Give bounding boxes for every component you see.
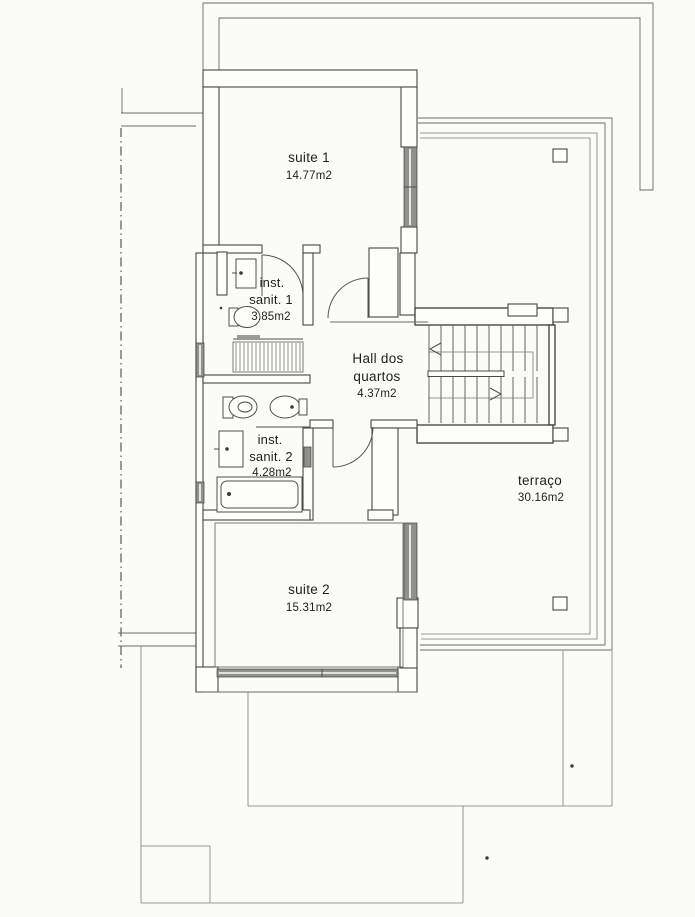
- wall-suite1-top: [203, 70, 417, 87]
- terrace-pillar-bottom: [553, 597, 567, 610]
- wall-suite2-bottom-right: [398, 667, 417, 692]
- room-label-sanit2-line1: inst.: [258, 432, 283, 447]
- wall-suite1-bottom-left: [203, 245, 262, 253]
- wall-exterior-left: [196, 253, 203, 692]
- wall-suite1-left: [203, 87, 219, 253]
- toilet-flush-dot-sanit2: [290, 405, 294, 409]
- terrace-border-inner-1: [420, 133, 597, 639]
- scan-speck: [220, 307, 223, 310]
- wall-sanit2-right: [303, 428, 313, 520]
- stairwell-stub-top-right: [553, 308, 568, 322]
- wall-stairwell-bottom: [417, 425, 553, 443]
- toilet-fixture-sanit2: [270, 396, 300, 418]
- wall-suite2-right-pillar: [397, 598, 418, 628]
- room-label-hall-line1: Hall dos: [352, 351, 403, 366]
- wall-suite1-right-lower: [401, 227, 417, 253]
- room-area-sanit2: 4.28m2: [252, 467, 292, 479]
- bathtub-faucet: [227, 492, 231, 496]
- wall-hall-bottom-left: [310, 420, 333, 428]
- wall-suite1-right-upper: [401, 87, 417, 147]
- floor-plan-drawing: suite 1 14.77m2 inst. sanit. 1 3.85m2 Ha…: [0, 0, 695, 917]
- shower-hatching: [236, 343, 300, 371]
- toilet-cistern-sanit2: [299, 399, 307, 415]
- side-yard-bottom-edge: [118, 633, 196, 646]
- floor-plan-sheet: suite 1 14.77m2 inst. sanit. 1 3.85m2 Ha…: [0, 0, 695, 917]
- room-area-terraco: 30.16m2: [518, 492, 564, 504]
- room-label-hall-line2: quartos: [353, 369, 400, 384]
- room-area-sanit1: 3.85m2: [251, 311, 291, 323]
- terrace-border: [418, 118, 612, 650]
- terrace-pillar-top: [553, 149, 567, 162]
- stair-direction-arrow-up: [430, 343, 441, 355]
- sink-faucet-sanit1: [239, 271, 243, 275]
- ground-outline-small-rect: [141, 846, 210, 903]
- bidet-fixture-sanit2: [229, 396, 257, 418]
- wall-column-terrace-side: [400, 253, 415, 315]
- scan-speck: [485, 856, 488, 859]
- door-swing-suite1: [328, 278, 368, 318]
- side-yard-top-edge: [121, 113, 203, 126]
- room-label-terraco: terraço: [518, 473, 562, 488]
- sink-fixture-sanit1: [236, 259, 256, 288]
- door-swing-suite2-corridor: [333, 427, 373, 467]
- wall-pier-suite2-top: [368, 510, 393, 520]
- wall-suite2-bottom-left: [196, 667, 218, 692]
- terrace-border-outer: [418, 118, 612, 650]
- window-corridor: [304, 447, 311, 467]
- stairwell-niche: [508, 304, 537, 316]
- wall-sanit1-right: [303, 253, 313, 325]
- room-label-suite1: suite 1: [288, 150, 330, 165]
- roof-outline: [203, 3, 653, 190]
- wall-suite1-bottom-right: [303, 245, 320, 253]
- room-label-suite2: suite 2: [288, 582, 330, 597]
- room-label-sanit1-line2: sanit. 1: [249, 292, 293, 307]
- room-area-suite2: 15.31m2: [286, 602, 332, 614]
- staircase: [428, 325, 537, 423]
- roof-edge-band: [203, 3, 653, 190]
- stair-treads-lower-flight: [429, 377, 537, 423]
- scan-speck: [570, 764, 573, 767]
- wall-suite2-right: [400, 628, 417, 668]
- wall-pier-corridor: [372, 428, 398, 515]
- room-area-hall: 4.37m2: [357, 388, 397, 400]
- shower-threshold-bar: [237, 335, 260, 340]
- closet-strip: [217, 252, 227, 295]
- stairwell-stub-bottom-right: [553, 428, 568, 441]
- side-yard: [118, 88, 203, 668]
- room-label-sanit2-line2: sanit. 2: [249, 449, 293, 464]
- terrace-border-mid: [418, 123, 605, 645]
- room-area-suite1: 14.77m2: [286, 170, 332, 182]
- terrace-border-inner-2: [420, 138, 590, 634]
- stair-handrail: [428, 371, 504, 377]
- room-label-sanit1-line1: inst.: [260, 275, 285, 290]
- stair-treads-upper-flight: [429, 325, 537, 371]
- wall-hall-bottom-right: [371, 420, 417, 428]
- wall-pier-hall-top: [369, 248, 398, 317]
- wall-between-bathrooms: [203, 375, 310, 383]
- sink-fixture-sanit2: [219, 431, 243, 467]
- wall-stairwell-right: [549, 325, 555, 425]
- sink-faucet-sanit2: [225, 447, 229, 451]
